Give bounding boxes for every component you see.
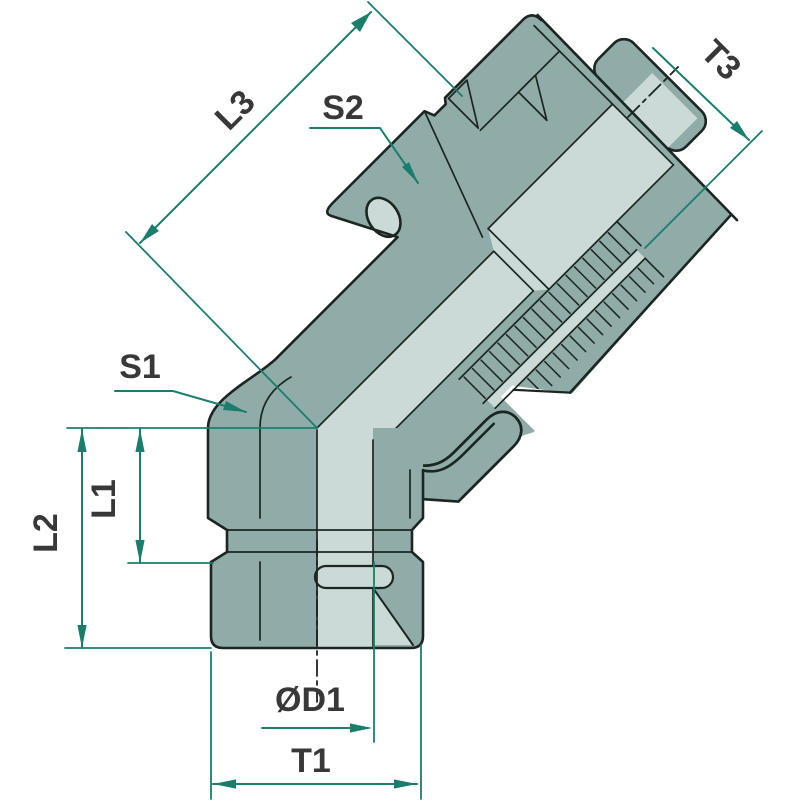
d1-label: ØD1 bbox=[275, 681, 345, 719]
t1-arrow-left bbox=[213, 779, 236, 788]
l1-arrow-bottom bbox=[135, 540, 144, 563]
t1-arrow-right bbox=[394, 779, 417, 788]
l2-arrow-top bbox=[77, 429, 86, 452]
drawing-canvas: L3 T3 S2 S1 L2 bbox=[0, 0, 800, 800]
t3-label: T3 bbox=[693, 33, 748, 88]
s1-label: S1 bbox=[119, 348, 161, 386]
elbow-fitting-diagram: L3 T3 S2 S1 L2 bbox=[0, 0, 800, 800]
stud-highlight-band bbox=[317, 428, 373, 648]
d1-arrow bbox=[350, 723, 372, 732]
fitting-illustration bbox=[208, 0, 779, 702]
l2-arrow-bottom bbox=[77, 625, 86, 648]
t1-label: T1 bbox=[291, 742, 331, 780]
callout-s1 bbox=[115, 391, 246, 412]
dimension-l1 bbox=[128, 429, 213, 563]
dimension-l2 bbox=[65, 429, 211, 648]
l1-label: L1 bbox=[85, 479, 123, 519]
l1-arrow-top bbox=[135, 429, 144, 452]
s2-label: S2 bbox=[322, 89, 364, 127]
oring-groove bbox=[315, 566, 393, 588]
l2-label: L2 bbox=[27, 513, 65, 553]
